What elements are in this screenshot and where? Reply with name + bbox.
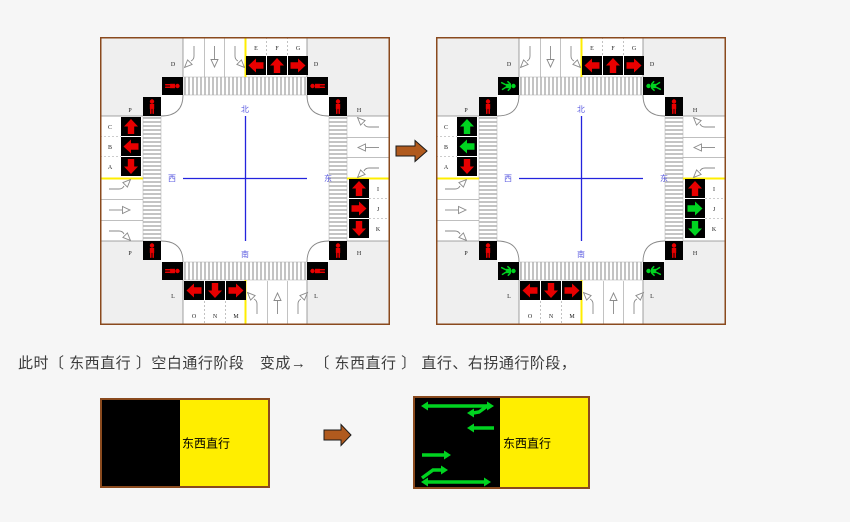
letter-label: I [377, 187, 379, 193]
pedestrian-signal-red [143, 97, 161, 116]
vehicle-signal-up-red [121, 117, 141, 136]
letter-label: E [254, 46, 258, 52]
page: EFGCBAIJKONMDDLLPPHH北南西东 EFGCBAIJKONMDDL… [0, 0, 850, 522]
vehicle-signal-right-red [288, 56, 308, 75]
compass-label-north: 北 [241, 105, 249, 114]
compass-label-south: 南 [577, 249, 585, 259]
letter-label: D [314, 62, 319, 68]
letter-label: G [632, 46, 637, 52]
phase-panel-before: 东西直行 [100, 398, 270, 488]
letter-label: C [444, 125, 448, 131]
vehicle-signal-down-red [541, 281, 561, 300]
green-arrow-right [422, 451, 451, 460]
letter-label: O [192, 314, 197, 320]
letter-label: L [171, 294, 175, 300]
vehicle-signal-up-red [685, 179, 705, 198]
letter-label: L [314, 294, 318, 300]
vehicle-signal-right-red [349, 199, 369, 218]
letter-label: H [693, 108, 698, 114]
pedestrian-signal-green [643, 262, 664, 280]
letter-label: H [693, 251, 698, 257]
transition-arrow-icon [323, 422, 353, 448]
vehicle-signal-down-green [685, 219, 705, 238]
letter-label: G [296, 46, 301, 52]
vehicle-signal-down-red [205, 281, 225, 300]
letter-label: D [507, 62, 512, 68]
vehicle-signal-left-red [520, 281, 540, 300]
caption-text: 此时〔 东西直行 〕空白通行阶段 变成→ 〔 东西直行 〕 直行、右拐通行阶段， [18, 352, 576, 373]
letter-label: H [357, 251, 362, 257]
pedestrian-signal-red [665, 241, 683, 260]
vehicle-signal-left-red [121, 137, 141, 156]
letter-label: I [713, 187, 715, 193]
letter-label: L [507, 294, 511, 300]
pedestrian-signal-red [162, 262, 183, 280]
compass-label-north: 北 [577, 105, 585, 114]
letter-label: B [108, 145, 112, 151]
vehicle-signal-up-red [603, 56, 623, 75]
letter-label: M [569, 314, 575, 320]
allowed-movements-arrows [415, 398, 500, 487]
letter-label: D [650, 62, 655, 68]
phase-panel-after: 东西直行 [413, 396, 590, 489]
vehicle-signal-down-red [349, 219, 369, 238]
vehicle-signal-right-red [624, 56, 644, 75]
vehicle-signal-left-red [582, 56, 602, 75]
vehicle-signal-down-red [121, 157, 141, 176]
vehicle-signal-down-red [457, 157, 477, 176]
pedestrian-signal-green [498, 77, 519, 95]
green-arrow-left [467, 424, 494, 433]
letter-label: A [108, 165, 113, 171]
crosswalk-north [184, 77, 306, 95]
letter-label: E [590, 46, 594, 52]
pedestrian-signal-red [143, 241, 161, 260]
crosswalk-south [184, 262, 306, 280]
compass-label-west: 西 [504, 174, 512, 183]
compass-label-east: 东 [324, 173, 332, 183]
vehicle-signal-right-red [562, 281, 582, 300]
intersection-diagram-before: EFGCBAIJKONMDDLLPPHH北南西东 [100, 37, 390, 325]
phase-panel-label: 东西直行 [503, 434, 551, 451]
vehicle-signal-left-red [246, 56, 266, 75]
pedestrian-signal-red [307, 262, 328, 280]
vehicle-signal-left-green [457, 137, 477, 156]
pedestrian-signal-green [643, 77, 664, 95]
letter-label: N [213, 314, 218, 320]
pedestrian-signal-red [329, 241, 347, 260]
letter-label: C [108, 125, 112, 131]
crosswalk-west [143, 117, 161, 241]
phase-panel-black-area [102, 400, 180, 486]
crosswalk-north [520, 77, 642, 95]
crosswalk-west [479, 117, 497, 241]
letter-label: L [650, 294, 654, 300]
letter-label: D [171, 62, 176, 68]
letter-label: K [376, 227, 381, 233]
green-arrow-double [421, 478, 491, 487]
compass-label-east: 东 [660, 173, 668, 183]
phase-panel-black-area [415, 398, 500, 487]
pedestrian-signal-red [329, 97, 347, 116]
green-arrow-hook-right [422, 466, 448, 479]
compass-label-west: 西 [168, 174, 176, 183]
letter-label: N [549, 314, 554, 320]
pedestrian-signal-red [665, 97, 683, 116]
pedestrian-signal-red [307, 77, 328, 95]
letter-label: O [528, 314, 533, 320]
transition-arrow-icon [395, 139, 429, 163]
compass-label-south: 南 [241, 249, 249, 259]
vehicle-signal-right-red [226, 281, 246, 300]
letter-label: A [444, 165, 449, 171]
vehicle-signal-right-green [685, 199, 705, 218]
vehicle-signal-left-red [184, 281, 204, 300]
letter-label: M [233, 314, 239, 320]
pedestrian-signal-green [498, 262, 519, 280]
crosswalk-south [520, 262, 642, 280]
phase-panel-label: 东西直行 [182, 435, 230, 452]
vehicle-signal-up-red [349, 179, 369, 198]
letter-label: K [712, 227, 717, 233]
letter-label: H [357, 108, 362, 114]
pedestrian-signal-red [162, 77, 183, 95]
vehicle-signal-up-red [267, 56, 287, 75]
vehicle-signal-up-green [457, 117, 477, 136]
intersection-diagram-after: EFGCBAIJKONMDDLLPPHH北南西东 [436, 37, 726, 325]
pedestrian-signal-red [479, 241, 497, 260]
pedestrian-signal-red [479, 97, 497, 116]
letter-label: B [444, 145, 448, 151]
